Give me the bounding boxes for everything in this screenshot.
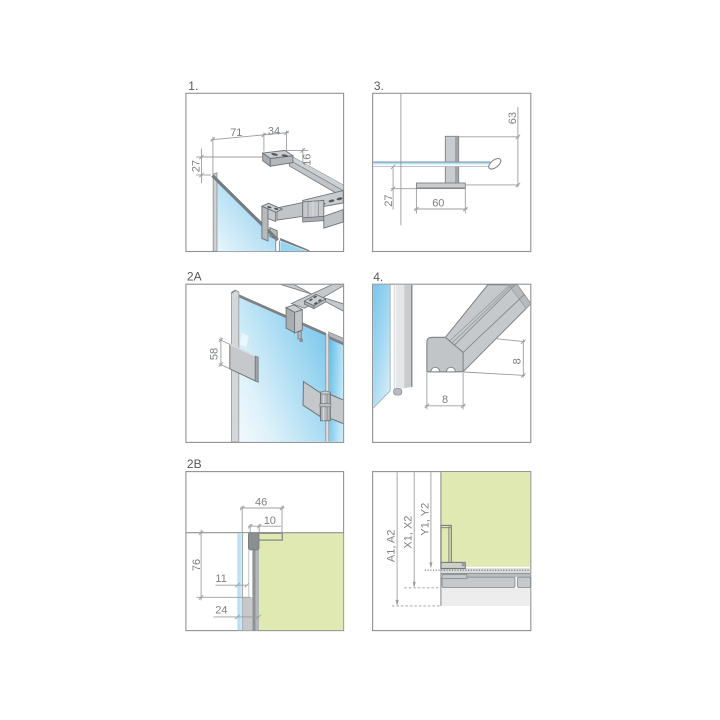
svg-text:46: 46 xyxy=(255,496,267,508)
svg-text:3.: 3. xyxy=(374,79,384,93)
svg-text:8: 8 xyxy=(442,394,448,406)
svg-text:X1, X2: X1, X2 xyxy=(403,516,415,549)
svg-text:24: 24 xyxy=(215,605,227,617)
svg-text:27: 27 xyxy=(383,194,395,206)
svg-text:1.: 1. xyxy=(188,79,198,93)
svg-text:63: 63 xyxy=(507,112,519,124)
svg-text:58: 58 xyxy=(209,348,221,360)
svg-text:A1, A2: A1, A2 xyxy=(386,530,398,562)
svg-text:Y1, Y2: Y1, Y2 xyxy=(419,503,431,536)
svg-text:76: 76 xyxy=(191,559,203,571)
svg-text:16: 16 xyxy=(302,154,314,166)
svg-text:60: 60 xyxy=(432,197,444,209)
svg-text:10: 10 xyxy=(264,515,276,527)
svg-text:2B: 2B xyxy=(187,457,202,471)
svg-text:8: 8 xyxy=(511,358,523,364)
svg-text:71: 71 xyxy=(230,127,242,139)
svg-text:34: 34 xyxy=(268,126,280,138)
svg-text:4.: 4. xyxy=(373,270,383,284)
svg-text:27: 27 xyxy=(190,160,202,172)
svg-text:11: 11 xyxy=(215,573,226,585)
svg-text:2A: 2A xyxy=(187,270,202,284)
